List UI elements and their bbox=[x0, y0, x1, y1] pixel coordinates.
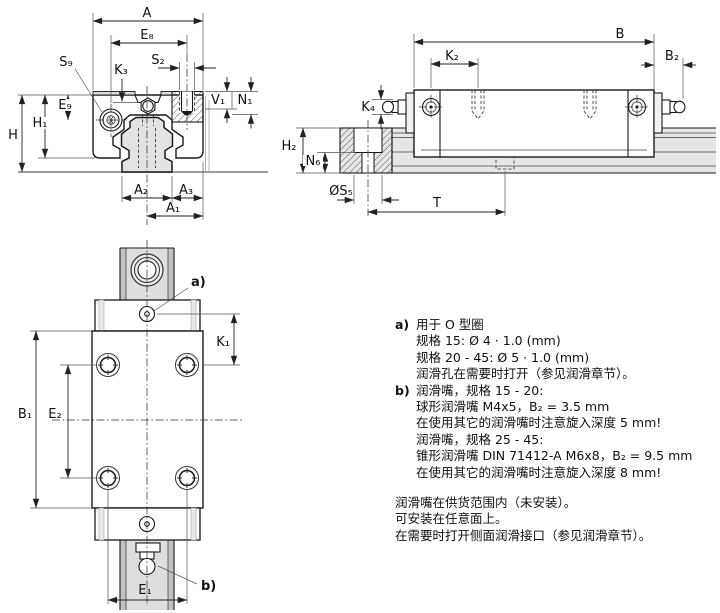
dim-label-E9: E₉ bbox=[58, 98, 71, 113]
dim-label-E2: E₂ bbox=[48, 407, 61, 422]
note-b-marker: b) bbox=[395, 383, 416, 481]
dim-label-A2: A₂ bbox=[134, 183, 148, 198]
dim-label-T: T bbox=[432, 196, 441, 211]
note-a-line-4: 润滑孔在需要时打开（参见润滑章节）。 bbox=[416, 366, 635, 382]
note-b-line-6: 在使用其它的润滑嘴时注意旋入深度 8 mm! bbox=[416, 465, 692, 481]
note-a-marker: a) bbox=[395, 317, 416, 383]
dim-label-K1: K₁ bbox=[216, 335, 230, 350]
note-footer-line-3: 在需要时打开侧面润滑接口（参见润滑章节）。 bbox=[395, 528, 717, 544]
note-a-line-1: 用于 O 型圈 bbox=[416, 317, 635, 333]
note-footer-line-1: 润滑嘴在供货范围内（未安装）。 bbox=[395, 495, 717, 511]
dim-label-H: H bbox=[8, 128, 18, 143]
note-footer: 润滑嘴在供货范围内（未安装）。 可安装在任意面上。 在需要时打开侧面润滑接口（参… bbox=[395, 495, 717, 544]
note-a-line-2: 规格 15: Ø 4 · 1.0 (mm) bbox=[416, 333, 635, 349]
note-a-line-3: 规格 20 - 45: Ø 5 · 1.0 (mm) bbox=[416, 350, 635, 366]
grease-nipple-right bbox=[662, 100, 685, 114]
dim-label-A3: A₃ bbox=[179, 183, 193, 198]
dim-label-K3: K₃ bbox=[114, 63, 128, 78]
mounting-hole bbox=[176, 354, 199, 377]
notes-panel: a) 用于 O 型圈 规格 15: Ø 4 · 1.0 (mm) 规格 20 -… bbox=[395, 317, 717, 544]
dim-label-B: B bbox=[616, 27, 625, 42]
callout-b: b) bbox=[201, 579, 216, 594]
dim-label-S9: S₉ bbox=[59, 55, 72, 70]
carriage-side-outline bbox=[414, 90, 654, 157]
dim-label-A1: A₁ bbox=[166, 201, 180, 216]
mounting-hole bbox=[176, 467, 199, 490]
tapped-hole-block bbox=[172, 92, 203, 123]
note-b-line-4: 润滑嘴，规格 25 - 45: bbox=[416, 432, 692, 448]
dim-label-H2: H₂ bbox=[282, 139, 297, 154]
dim-label-H1: H₁ bbox=[33, 116, 48, 131]
mounting-hole bbox=[97, 467, 120, 490]
dim-label-A: A bbox=[143, 6, 152, 21]
technical-drawing-page: A E₈ S₂ S₉ K₃ V₁ N₁ E₉ H H₁ A₂ A₃ A₁ bbox=[0, 0, 720, 613]
dim-label-N1: N₁ bbox=[238, 93, 253, 108]
dim-label-N6: N₆ bbox=[306, 154, 321, 169]
mounting-hole bbox=[97, 354, 120, 377]
dim-label-E1: E₁ bbox=[138, 583, 151, 598]
note-b-line-1: 润滑嘴，规格 15 - 20: bbox=[416, 383, 692, 399]
note-b-line-5: 锥形润滑嘴 DIN 71412-A M6x8，B₂ = 9.5 mm bbox=[416, 448, 692, 464]
top-view-drawing: a) K₁ B₁ E₂ b) E₁ bbox=[18, 240, 242, 610]
dim-label-V1: V₁ bbox=[211, 93, 225, 108]
callout-a: a) bbox=[191, 275, 206, 290]
note-b-line-3: 在使用其它的润滑嘴时注意旋入深度 5 mm! bbox=[416, 415, 692, 431]
dim-label-K4: K₄ bbox=[361, 100, 375, 115]
note-b-line-2: 球形润滑嘴 M4x5，B₂ = 3.5 mm bbox=[416, 399, 692, 415]
note-footer-line-2: 可安装在任意面上。 bbox=[395, 511, 717, 527]
dim-label-S2: S₂ bbox=[151, 53, 164, 68]
dim-label-S5: ØS₅ bbox=[329, 184, 353, 199]
dim-label-E8: E₈ bbox=[140, 28, 153, 43]
dim-label-B1: B₁ bbox=[18, 407, 32, 422]
dim-label-B2: B₂ bbox=[665, 49, 679, 64]
side-view-drawing: B K₂ B₂ K₄ H₂ N₆ ØS₅ T bbox=[282, 27, 717, 216]
front-view-drawing: A E₈ S₂ S₉ K₃ V₁ N₁ E₉ H H₁ A₂ A₃ A₁ bbox=[8, 6, 268, 225]
rail-section-cut bbox=[340, 128, 392, 173]
note-item-a: a) 用于 O 型圈 规格 15: Ø 4 · 1.0 (mm) 规格 20 -… bbox=[395, 317, 717, 383]
grease-nipple-left bbox=[383, 100, 407, 114]
note-item-b: b) 润滑嘴，规格 15 - 20: 球形润滑嘴 M4x5，B₂ = 3.5 m… bbox=[395, 383, 717, 481]
dim-label-K2: K₂ bbox=[445, 49, 459, 64]
